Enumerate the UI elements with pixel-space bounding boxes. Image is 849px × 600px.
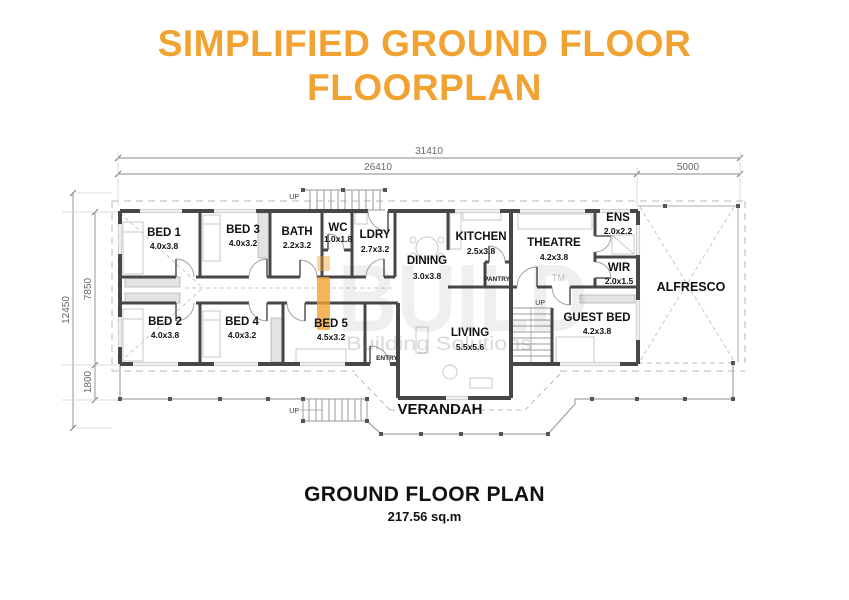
room-label-bed3: BED 3 <box>226 224 260 236</box>
plan-caption: GROUND FLOOR PLAN 217.56 sq.m <box>0 483 849 524</box>
room-label-guestbed: GUEST BED <box>563 312 630 324</box>
room-label-ldry: LDRY <box>360 229 391 241</box>
plan-caption-area: 217.56 sq.m <box>0 509 849 524</box>
dim-main-width: 26410 <box>364 162 392 173</box>
room-size-wir: 2.0x1.5 <box>605 276 634 286</box>
room-size-wc: 1.0x1.8 <box>324 234 353 244</box>
room-label-dining: DINING <box>407 255 447 267</box>
watermark-i-dot <box>317 256 330 271</box>
watermark-tm: TM <box>552 273 565 283</box>
room-label-bed1: BED 1 <box>147 227 181 239</box>
dim-total-depth: 12450 <box>61 296 72 324</box>
room-size-bed5: 4.5x3.2 <box>317 332 346 342</box>
entry-label: ENTRY <box>376 355 398 362</box>
room-size-bed1: 4.0x3.8 <box>150 241 179 251</box>
room-size-theatre: 4.2x3.8 <box>540 252 569 262</box>
room-size-ens: 2.0x2.2 <box>604 226 633 236</box>
floorplan-page: SIMPLIFIED GROUND FLOOR FLOORPLAN <box>0 0 849 600</box>
room-size-kitchen: 2.5x3.8 <box>467 246 496 256</box>
room-size-dining: 3.0x3.8 <box>413 271 442 281</box>
room-size-living: 5.5x5.6 <box>456 342 485 352</box>
room-size-guestbed: 4.2x3.8 <box>583 326 612 336</box>
plan-caption-title: GROUND FLOOR PLAN <box>0 483 849 507</box>
dim-total-width: 31410 <box>415 146 443 157</box>
stairs-top <box>301 188 387 210</box>
room-size-bed4: 4.0x3.2 <box>228 330 257 340</box>
room-size-bed3: 4.0x3.2 <box>229 238 258 248</box>
room-label-bed2: BED 2 <box>148 316 182 328</box>
room-label-alfresco: ALFRESCO <box>657 280 726 294</box>
room-label-bath: BATH <box>281 226 312 238</box>
stairs-bottom <box>300 397 369 423</box>
dim-verandah-depth: 1800 <box>83 370 94 393</box>
room-label-bed5: BED 5 <box>314 318 348 330</box>
watermark-tagline: Building Solutions <box>346 334 532 355</box>
room-size-bath: 2.2x3.2 <box>283 240 312 250</box>
room-size-ldry: 2.7x3.2 <box>361 244 390 254</box>
up-label-bottom: UP <box>289 408 299 415</box>
room-label-kitchen: KITCHEN <box>455 231 506 243</box>
room-label-bed4: BED 4 <box>225 316 259 328</box>
room-label-ens: ENS <box>606 212 630 224</box>
room-label-wc: WC <box>328 222 347 234</box>
dim-alfresco-width: 5000 <box>677 162 700 173</box>
up-label-top: UP <box>289 194 299 201</box>
room-label-verandah: VERANDAH <box>397 401 482 418</box>
room-size-bed2: 4.0x3.8 <box>151 330 180 340</box>
pantry-label: PANTRY <box>484 276 511 283</box>
up-label-internal: UP <box>535 300 545 307</box>
dim-main-depth: 7850 <box>83 277 94 300</box>
room-label-wir: WIR <box>608 262 631 274</box>
room-label-theatre: THEATRE <box>527 237 581 249</box>
room-label-living: LIVING <box>451 327 489 339</box>
